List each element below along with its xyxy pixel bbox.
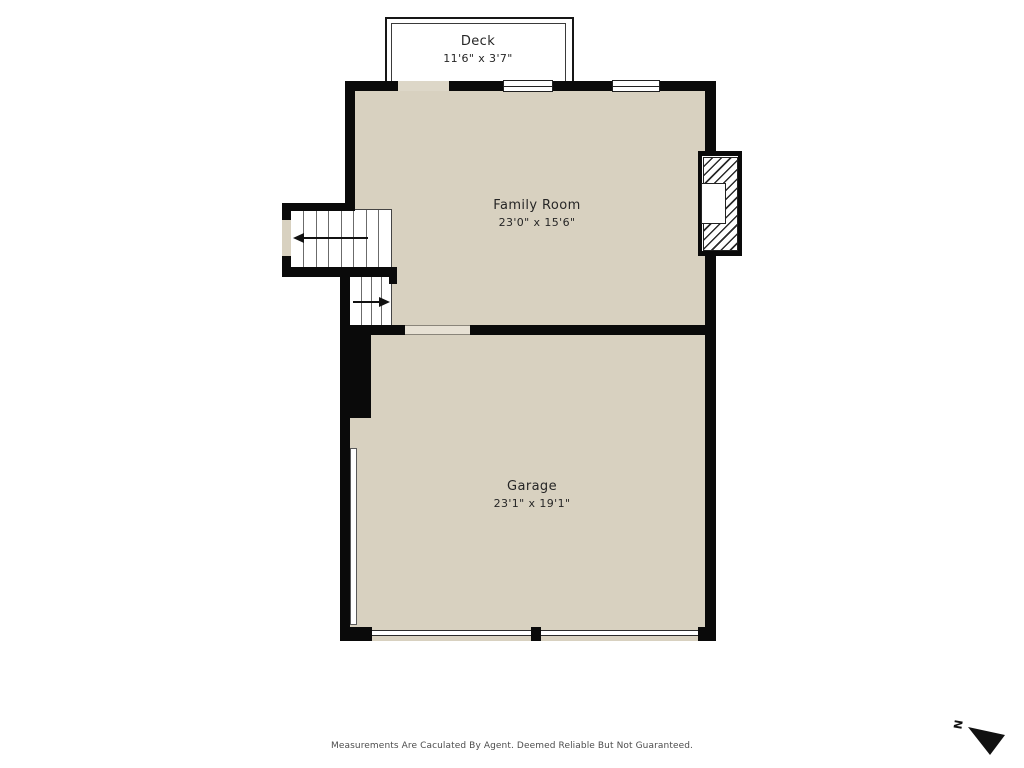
garage-bottom-right-corner [698, 627, 716, 641]
window-mullion [504, 86, 552, 87]
stair-tread [378, 209, 379, 267]
garage-door-center-post [531, 627, 541, 641]
garage-left-wall-block [340, 335, 371, 418]
family-room-label: Family Room 23'0" x 15'6" [437, 198, 637, 229]
window [612, 80, 660, 92]
room-dims: 23'0" x 15'6" [437, 216, 637, 229]
stair-nook-top-wall [282, 203, 355, 211]
stairs-lower-right-edge [391, 277, 392, 327]
stair-direction-arrow-icon [379, 297, 390, 307]
garage-left-wall [340, 418, 350, 641]
floor-plan: Deck 11'6" x 3'7" [0, 0, 1024, 768]
window [503, 80, 553, 92]
stair-nook-left-stub-top [282, 203, 291, 220]
window-mullion [613, 86, 659, 87]
garage-door-right [541, 630, 698, 636]
stairs-upper [291, 209, 392, 267]
stair-nook-opening [282, 219, 291, 257]
deck-door-opening [398, 81, 449, 91]
room-dims: 23'1" x 19'1" [432, 497, 632, 510]
wall-divider-family-garage [345, 325, 716, 335]
fireplace-firebox [701, 183, 726, 224]
interior-door-opening [405, 325, 470, 335]
north-arrow-icon: N [945, 698, 1020, 764]
garage-label: Garage 23'1" x 19'1" [432, 479, 632, 510]
stairs-lower [350, 277, 392, 327]
room-name: Garage [432, 479, 632, 494]
wall-left-family-room [345, 81, 355, 211]
compass-n-label: N [951, 719, 965, 730]
room-dims: 11'6" x 3'7" [388, 52, 568, 65]
room-name: Deck [388, 34, 568, 49]
stairs-upper-right-edge [391, 209, 392, 267]
deck-label: Deck 11'6" x 3'7" [388, 34, 568, 65]
garage-door-left [372, 630, 531, 636]
garage-bottom-left-corner [340, 627, 372, 641]
garage-side-door-strip [350, 448, 357, 625]
stair-lower-right-stub [389, 267, 397, 284]
stair-direction-line [302, 237, 368, 239]
stair-nook-bottom-wall [282, 267, 397, 277]
compass: N [945, 698, 1020, 764]
stair-direction-arrow-icon [293, 233, 304, 243]
footer-disclaimer: Measurements Are Caculated By Agent. Dee… [0, 741, 1024, 751]
stair-direction-line [353, 301, 381, 303]
room-name: Family Room [437, 198, 637, 213]
